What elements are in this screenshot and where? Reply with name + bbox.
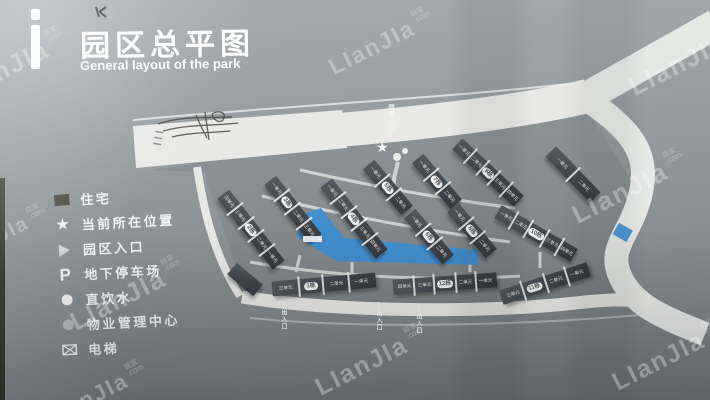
unit-label: 二单元 [329,279,343,287]
dot-gray-icon [59,319,78,331]
unit-divider [347,271,351,292]
building-7栋: 一单元7栋二单元 [412,153,462,209]
unit-label: 二单元 [513,218,528,230]
building-number-badge: 12栋 [436,278,453,287]
unit-label: 一单元 [499,210,514,222]
exit-label: 出入口 [374,302,383,331]
legend-label: 直饮水 [85,287,132,308]
exit-label: 出入口 [279,301,288,330]
label-tick [378,302,380,309]
star-icon: ★ [53,218,72,233]
unit-label: 二单元 [255,235,269,250]
label-tick [283,301,285,308]
unit-label: 四单元 [369,238,383,253]
unit-label: 二单元 [459,278,473,285]
park-entrance-label: 园区入口 [386,104,395,140]
page-subtitle: General layout of the park [80,56,241,73]
unit-label: 三单元 [505,288,520,298]
dot-white-icon [61,294,73,306]
unit-label: 四单元 [397,282,411,289]
legend-item: 直饮水 [57,287,179,308]
unit-divider [541,273,549,294]
unit-divider [297,276,301,297]
unit-label: 一单元 [326,183,340,198]
scratch-mark [94,5,109,20]
exit-label-text: 出入口 [279,309,288,330]
unit-label: 一单元 [410,214,424,229]
exit-label-text: 出入口 [414,313,423,334]
building-number-badge: 11栋 [525,280,543,293]
info-i-icon [31,9,40,20]
building-block: 一单元二单元 [545,146,600,202]
legend-label: 电梯 [88,338,120,359]
unit-label: 一单元 [570,267,585,277]
unit-label: 二单元 [549,274,564,284]
unit-label: 一单元 [479,276,493,283]
unit-label: 一单元 [369,165,383,180]
unit-divider [454,272,457,293]
building-8栋: 一单元8栋二单元 [447,202,497,258]
elevator-box-icon [60,344,79,356]
building-number-badge: 1栋 [304,281,318,290]
building-6栋: 一单元6栋二单元 [404,208,454,264]
unit-label: 四单元 [559,244,574,256]
unit-label: 三单元 [544,236,559,248]
highlighted-building-label [303,236,322,242]
unit-label: 二单元 [477,237,491,252]
unit-label: 二单元 [291,208,305,223]
legend-item: 物业管理中心 [59,311,181,332]
exit-label: 出入口 [414,305,423,334]
legend-label: 园区入口 [82,236,145,258]
building-4栋: 一单元二单元4栋三单元四单元 [320,178,387,258]
parking-p-icon: P [56,267,75,283]
unit-label: 三单元 [417,281,431,288]
residence-square-icon [53,194,69,206]
info-i-icon-stem [31,25,40,69]
unit-label: 一单元 [457,143,471,157]
legend-item: 园区入口 [55,237,177,258]
unit-label: 一单元 [266,249,280,264]
unit-divider [432,273,435,294]
photo-left-edge [0,178,5,400]
legend-label: 物业管理中心 [86,309,180,333]
unit-label: 三单元 [279,284,293,292]
dot-white-icon [57,294,76,306]
legend-item: P地下停车场 [56,262,178,283]
residence-square-icon [52,194,71,206]
unit-label: 二单元 [577,178,591,192]
legend-label: 住宅 [80,188,112,209]
unit-divider [474,270,477,291]
unit-label: 一单元 [453,208,467,223]
label-tick [390,132,392,139]
unit-label: 二单元 [434,243,448,258]
dot-gray-icon [62,319,74,331]
park-layout-signboard: ★ 三单元1栋二单元一单元四单元三单元2栋二单元一单元一单元3栋二单元三单元一单… [0,0,710,400]
legend-label: 地下停车场 [84,260,162,283]
unit-label: 一单元 [555,156,569,170]
legend-item: ★当前所在位置 [53,212,175,233]
unit-label: 一单元 [270,180,284,195]
building-5栋: 一单元5栋二单元 [363,159,413,215]
building-3栋: 一单元3栋二单元三单元 [264,175,321,243]
map-legend: 住宅★当前所在位置园区入口P地下停车场直饮水物业管理中心电梯 [52,187,181,358]
park-entrance-label-text: 园区入口 [386,104,395,132]
unit-label: 三单元 [358,224,372,239]
unit-divider [321,274,325,295]
unit-label: 二单元 [469,154,483,168]
unit-label: 四单元 [506,188,520,202]
unit-label: 一单元 [418,159,432,174]
unit-label: 三单元 [234,208,248,223]
unit-label: 一单元 [355,277,369,285]
unit-label: 四单元 [223,194,237,209]
building-12栋: 四单元三单元12栋二单元一单元 [393,272,498,294]
unit-label: 二单元 [442,188,456,203]
building-10栋: 一单元二单元10栋三单元四单元 [494,205,578,262]
unit-label: 二单元 [393,194,407,209]
triangle-icon [58,244,70,257]
building-1栋: 三单元1栋二单元一单元 [272,272,377,296]
unit-label: 二单元 [337,197,351,212]
building-block [227,262,263,295]
legend-label: 当前所在位置 [81,210,175,234]
unit-divider [412,275,415,296]
building-9栋: 一单元二单元9栋三单元四单元 [452,138,524,206]
label-tick [418,305,420,312]
triangle-icon [55,243,74,256]
building-11栋: 三单元11栋二单元一单元 [499,262,591,305]
exit-label-text: 出入口 [374,310,383,331]
current-location-star-icon: ★ [376,139,389,156]
